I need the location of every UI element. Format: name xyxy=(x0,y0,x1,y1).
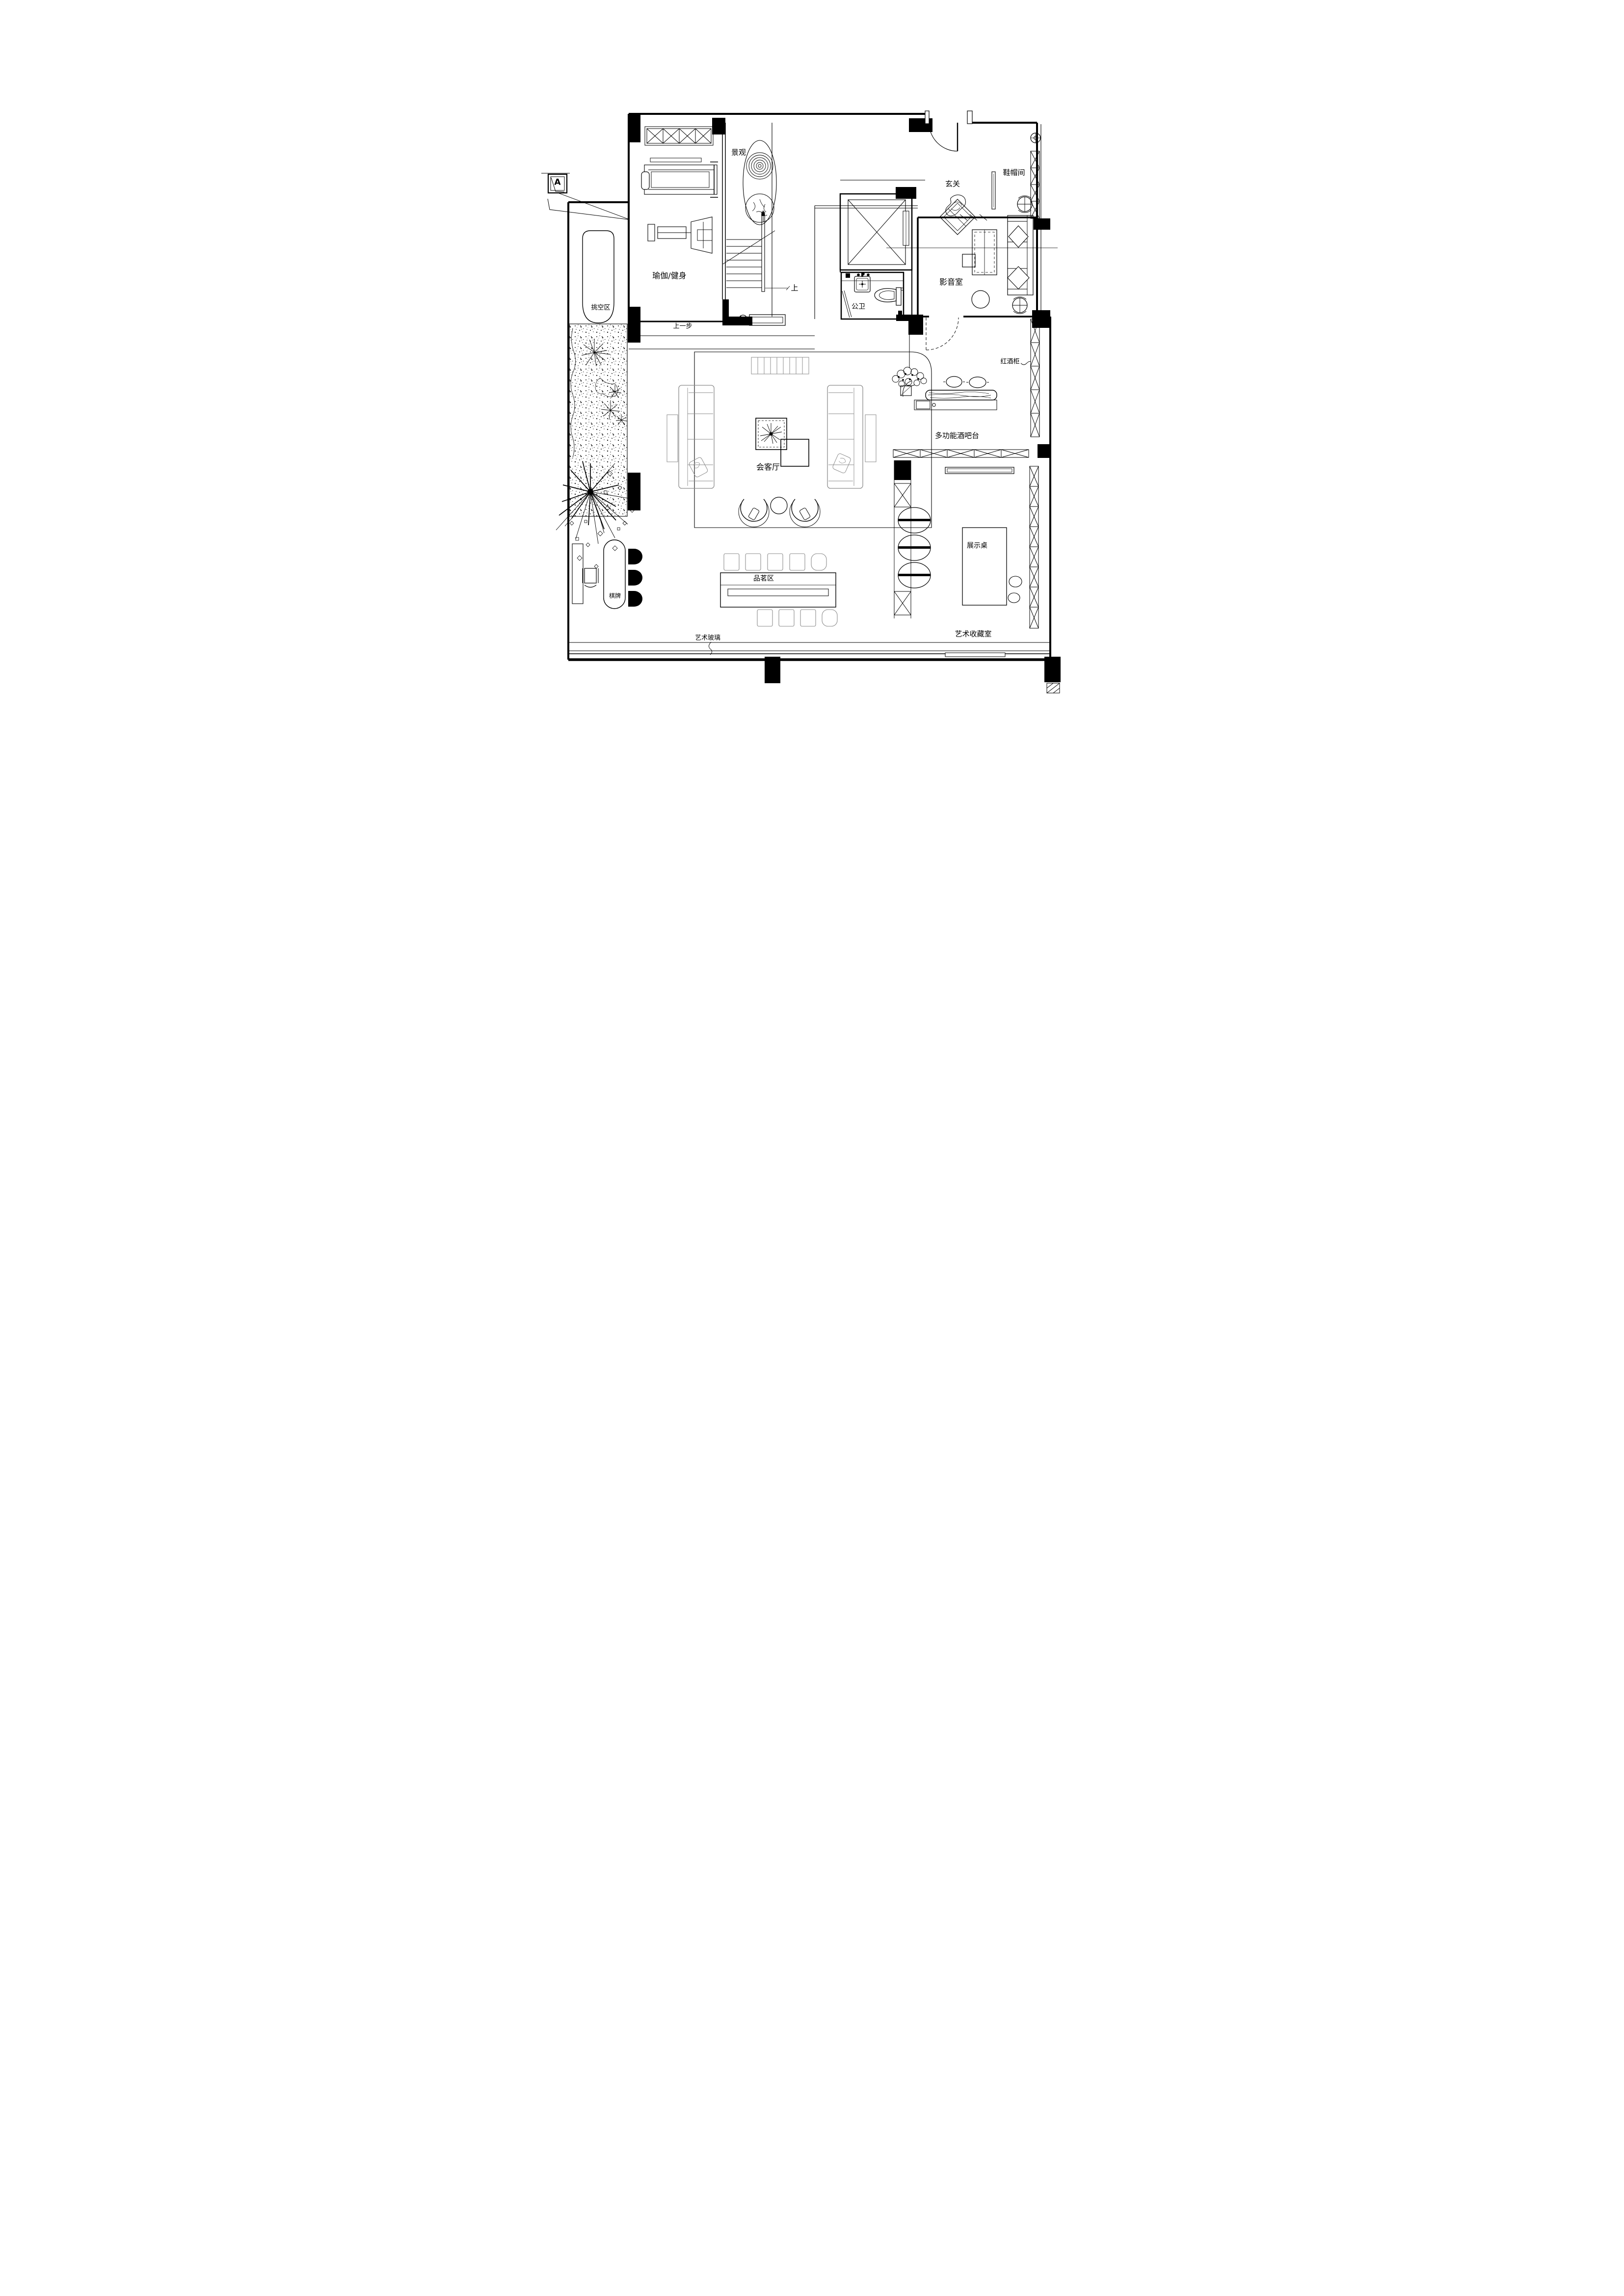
landscape-planter xyxy=(743,140,776,225)
black-chair-icon xyxy=(628,549,642,564)
side-cabinet xyxy=(572,544,583,604)
label-restroom: 公卫 xyxy=(852,303,865,310)
tea-table-slot xyxy=(728,589,828,596)
bar-stool xyxy=(969,377,986,388)
gym-equipment xyxy=(641,158,718,253)
label-shoe-hat-room: 鞋帽间 xyxy=(1003,169,1025,177)
toilet-icon xyxy=(875,288,904,305)
bar-plant-icon xyxy=(892,367,927,397)
theater-door-arc xyxy=(926,318,958,350)
bathroom xyxy=(841,272,904,319)
bar-area xyxy=(892,321,997,410)
label-entry: 玄关 xyxy=(945,181,960,188)
label-bar: 多功能酒吧台 xyxy=(935,432,979,440)
display-stool xyxy=(1008,593,1020,603)
tea-chairs xyxy=(724,554,837,626)
desk-chair-icon xyxy=(583,568,598,587)
sofa-left xyxy=(667,385,714,488)
tea-table-outline xyxy=(720,573,836,607)
console-slats xyxy=(751,357,809,374)
table-plant-icon xyxy=(760,423,782,444)
display-stool xyxy=(1009,576,1022,587)
black-chair-icon xyxy=(628,570,642,586)
bathroom-door-leaf xyxy=(842,291,852,318)
black-chair-icon xyxy=(628,591,642,607)
theater-cabinet xyxy=(962,230,997,275)
label-step-up: 上一步 xyxy=(673,323,692,330)
label-chess-cards: 棋牌 xyxy=(609,593,621,599)
display-table-outline xyxy=(962,528,1007,605)
label-art-glass: 艺术玻璃 xyxy=(695,635,720,641)
label-void-area: 挑空区 xyxy=(591,305,610,311)
art-glass-leader xyxy=(709,642,712,655)
sofa-pillow-icon xyxy=(1008,267,1029,289)
label-yoga-fitness: 瑜伽/健身 xyxy=(652,272,686,280)
label-home-theater: 影音室 xyxy=(939,278,963,286)
theater-sofa xyxy=(1008,215,1033,295)
wine-cabinet-leader xyxy=(1021,361,1031,365)
speaker-icon xyxy=(1017,196,1032,213)
foyer xyxy=(946,133,1040,216)
tea-area xyxy=(720,554,837,626)
display-pedestal xyxy=(898,507,931,533)
barrel-chair xyxy=(739,499,769,527)
chess-corner xyxy=(572,540,642,609)
coffee-table xyxy=(756,418,809,466)
bar-stool xyxy=(946,376,962,387)
staircase xyxy=(723,210,790,325)
rug-outline xyxy=(694,352,932,528)
side-table-round xyxy=(771,497,787,514)
up-leader-line xyxy=(765,286,790,290)
art-collection-room xyxy=(898,467,1022,605)
sofa-pillow-icon xyxy=(1009,226,1028,247)
exercise-bike-icon xyxy=(648,217,712,253)
bar-counter xyxy=(914,390,997,410)
label-section-marker: A xyxy=(554,179,560,187)
foyer-decor-icon xyxy=(946,195,966,216)
display-pedestal xyxy=(898,535,931,561)
label-tea-area: 品茗区 xyxy=(753,575,774,582)
corner-hatch-square xyxy=(1047,683,1060,693)
label-art-collection: 艺术收藏室 xyxy=(955,631,991,638)
floor-plan-sheet: 景观 玄关 鞋帽间 影音室 公卫 红酒柜 多功能酒吧台 会客厅 展示桌 棋牌 品… xyxy=(541,0,1083,765)
label-landscape: 景观 xyxy=(731,149,746,157)
speaker-icon xyxy=(1012,297,1027,314)
reception-hall xyxy=(667,352,932,528)
display-pedestal xyxy=(898,562,931,588)
sink-icon xyxy=(854,272,870,292)
sofa-right xyxy=(827,385,876,488)
floor-plan-drawing xyxy=(541,0,1083,765)
wood-grain xyxy=(928,392,991,398)
label-reception-hall: 会客厅 xyxy=(756,463,780,471)
home-theater xyxy=(926,196,1033,350)
treadmill-icon xyxy=(641,158,718,197)
label-wine-cabinet: 红酒柜 xyxy=(1000,359,1019,365)
theater-ottoman xyxy=(972,291,989,308)
sliding-door-track xyxy=(945,467,1014,474)
label-up: 上 xyxy=(791,285,798,292)
elevator xyxy=(840,194,912,270)
label-display-table: 展示桌 xyxy=(967,542,987,549)
barrel-chair xyxy=(790,499,820,527)
